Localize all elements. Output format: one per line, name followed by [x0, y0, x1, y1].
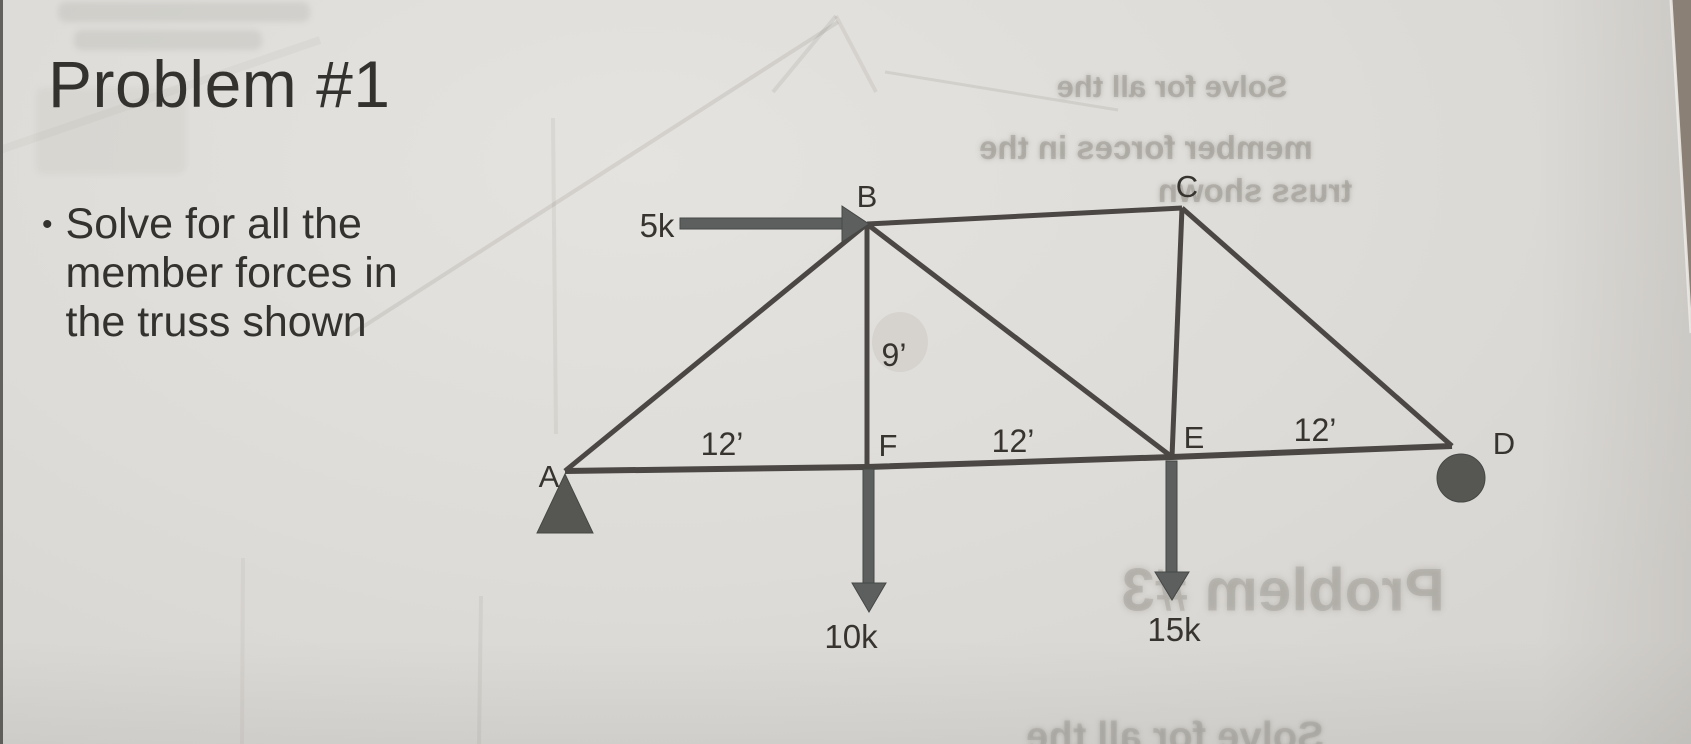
node-label-a: A: [539, 459, 560, 494]
load-arrow-15k: [1155, 461, 1189, 600]
load-label-15k: 15k: [1147, 611, 1201, 648]
node-label-b: B: [857, 179, 878, 214]
roller-support-icon: [1437, 454, 1485, 502]
dim-label-af: 12’: [701, 426, 744, 462]
load-arrow-10k-head: [852, 583, 886, 612]
member-ce: [1172, 208, 1182, 457]
load-arrow-15k-shaft: [1166, 461, 1177, 573]
bleedthrough-lines: [0, 16, 1118, 744]
member-cd: [1182, 208, 1452, 446]
load-arrow-15k-head: [1155, 572, 1189, 600]
load-arrow-5k: [680, 206, 869, 242]
bullet-line: Solve for all the: [66, 200, 398, 249]
slide-photo: Solve for all the member forces in the t…: [0, 0, 1691, 744]
desk-corner: [1671, 0, 1691, 333]
load-arrow-5k-shaft: [680, 218, 843, 229]
node-label-f: F: [879, 428, 898, 463]
node-label-c: C: [1176, 169, 1198, 204]
node-label-d: D: [1493, 426, 1515, 461]
dim-label-ed: 12’: [1294, 412, 1337, 448]
load-arrow-10k-shaft: [863, 469, 874, 584]
bullet-line: member forces in: [66, 249, 398, 298]
dim-label-fe: 12’: [992, 423, 1035, 459]
bullet-marker: •: [42, 200, 53, 249]
node-label-e: E: [1184, 420, 1205, 455]
load-label-10k: 10k: [824, 618, 878, 655]
bullet-item: • Solve for all the member forces in the…: [42, 200, 398, 347]
load-label-5k: 5k: [640, 207, 675, 244]
bullet-line: the truss shown: [66, 298, 398, 347]
load-arrow-10k: [852, 469, 886, 612]
bullet-text: Solve for all the member forces in the t…: [66, 200, 398, 347]
dim-label-bf: 9’: [882, 337, 907, 373]
member-bc: [867, 208, 1182, 224]
slide-title: Problem #1: [48, 46, 391, 122]
